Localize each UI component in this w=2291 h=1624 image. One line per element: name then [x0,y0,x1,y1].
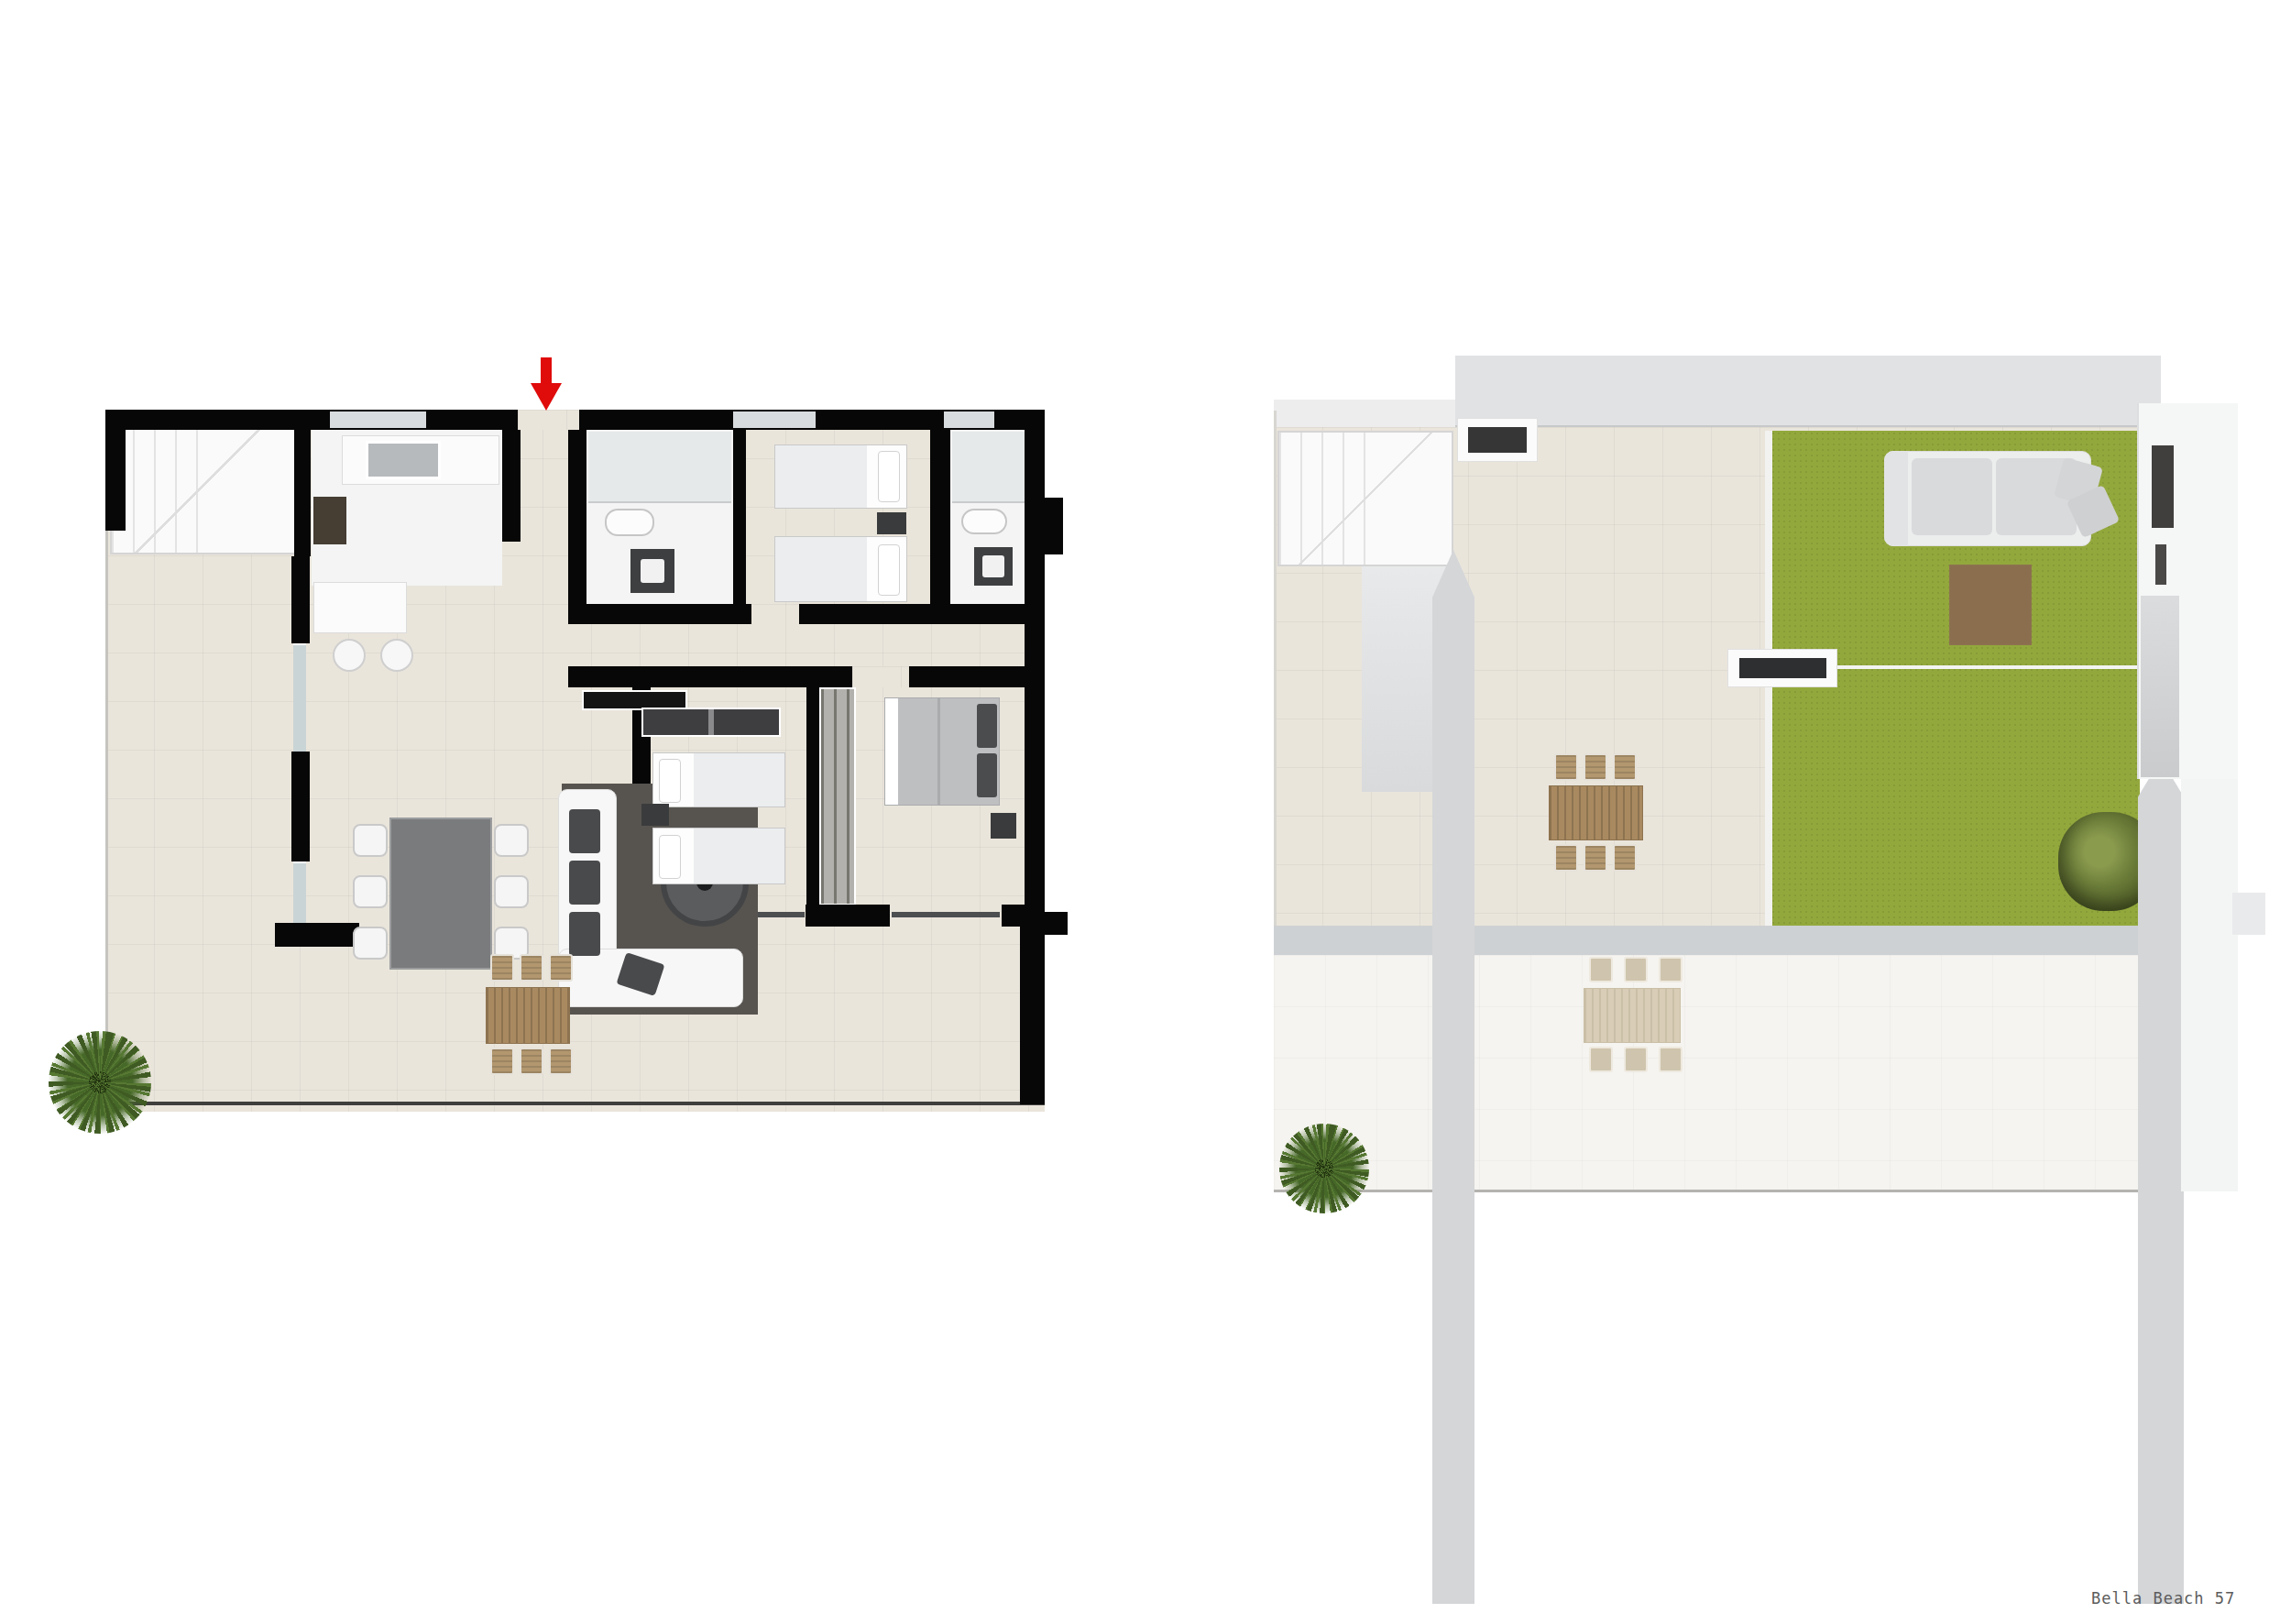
master-closet [819,687,856,905]
kitchen-island [313,582,407,633]
lower-terrace-edge [1274,1190,2144,1192]
bed-pillow [878,544,900,596]
dining-chair [494,824,529,857]
bathroom-sink [630,549,674,593]
staircase [1277,431,1453,566]
wall [1020,925,1045,1104]
outdoor-chair [1613,844,1637,872]
wall [502,430,521,542]
potted-plant [1279,1124,1369,1213]
chimney-window [2152,445,2174,528]
bed-pillow-dark [977,753,997,797]
lower-dining-table [1584,988,1681,1043]
roof-edge-strip [1274,400,1455,427]
wall [275,923,359,947]
shower-2 [952,432,1025,503]
wall [568,604,751,624]
stair-diagonal [112,417,296,553]
lower-chair [1624,957,1648,982]
roof-band [1455,356,2161,427]
bar-stool [380,639,413,672]
wall [1045,912,1068,935]
lower-chair [1659,1047,1683,1072]
outdoor-chair [1584,844,1607,872]
walkway-strip [1274,926,2140,955]
bed-pillow [659,759,681,803]
dining-chair [494,875,529,908]
sofa-armrest [1884,451,1908,546]
wardrobe [641,708,781,737]
roof-dining-table [1549,785,1643,840]
dining-chair [353,875,388,908]
bed-blanket [775,537,867,601]
bed-sheet-fold [885,698,898,805]
sofa-cushion [569,912,600,956]
sliding-door-glass [293,643,306,755]
wall [291,556,310,643]
sofa-cushion [1912,458,1992,535]
wall [799,604,1045,624]
door-opening [852,666,909,687]
nightstand [641,804,669,826]
toilet [961,509,1007,534]
outdoor-chair [490,1048,514,1075]
kitchen-sink [366,441,441,479]
outdoor-dining-table [486,987,570,1044]
planter-unit-slot [1739,658,1826,678]
outdoor-coffee-table [1949,565,2032,645]
staircase [110,415,298,554]
interior-floor-plan [105,410,1045,1112]
outdoor-chair [549,954,573,982]
wall [291,752,310,861]
sofa-cushion [569,809,600,853]
outdoor-chair [520,1048,543,1075]
lower-chair [1589,1047,1613,1072]
outdoor-chair [1613,753,1637,781]
entrance-opening [518,410,579,430]
project-caption: Bella Beach 57 [2091,1589,2235,1608]
single-bed [652,752,785,807]
wall [733,430,746,604]
wall [1045,498,1063,554]
outdoor-chair [1554,753,1578,781]
terrace-bottom-edge [105,1102,1045,1105]
entrance-arrow-head [531,383,562,411]
outdoor-chair [520,954,543,982]
lower-terrace [1274,955,2144,1191]
stair-diagonal [1279,433,1452,565]
single-bed [774,444,907,509]
entrance-arrow [531,357,562,411]
entrance-arrow-shaft [541,357,552,383]
skylight-glass [1468,427,1527,453]
toilet [605,509,654,536]
bed-blanket [694,753,784,807]
wall [568,430,586,604]
single-bed [774,536,907,602]
pillar [1432,550,1474,1604]
shower-1 [588,432,731,503]
wall [568,666,1025,687]
wall [930,430,950,604]
wall [294,422,311,556]
floorplan-sheet: Bella Beach 57 [0,0,2291,1624]
bed-blanket [694,828,784,883]
lower-chair [1589,957,1613,982]
window-bedroom [733,411,816,428]
bed-pillow [659,835,681,879]
window-kitchen [330,411,426,428]
outdoor-chair [490,954,514,982]
nightstand [877,512,906,534]
outdoor-chair [1554,844,1578,872]
potted-plant [49,1031,151,1134]
dining-table [389,817,492,970]
sliding-door-glass [293,861,306,929]
terrace-left-railing [105,527,108,1104]
wall [806,687,819,905]
wall [1025,641,1045,925]
right-wall-lower [2181,779,2238,1191]
kitchen-appliance [313,497,346,544]
bathroom-sink [974,547,1013,586]
wall [1002,905,1045,927]
solarium-roof-plan [1274,356,2277,1624]
lower-chair [1624,1047,1648,1072]
sofa-cushion [569,861,600,905]
dining-chair [353,927,388,960]
wall-tab [2232,893,2265,935]
bed-blanket [775,445,867,508]
bed-pillow [878,451,900,502]
column-shade [2141,596,2179,777]
wall [105,410,126,531]
bedroom-bench [991,813,1016,839]
chimney-slot [2155,544,2166,585]
single-bed [652,828,785,884]
pillar [2138,759,2184,1604]
bed-pillow-dark [977,704,997,748]
window-bathroom [944,411,994,428]
wall [806,905,890,927]
lower-chair [1659,957,1683,982]
outdoor-chair [549,1048,573,1075]
outdoor-chair [1584,753,1607,781]
bar-stool [333,639,366,672]
sliding-door-track [892,912,1000,917]
double-bed [884,697,1000,806]
dining-chair [353,824,388,857]
